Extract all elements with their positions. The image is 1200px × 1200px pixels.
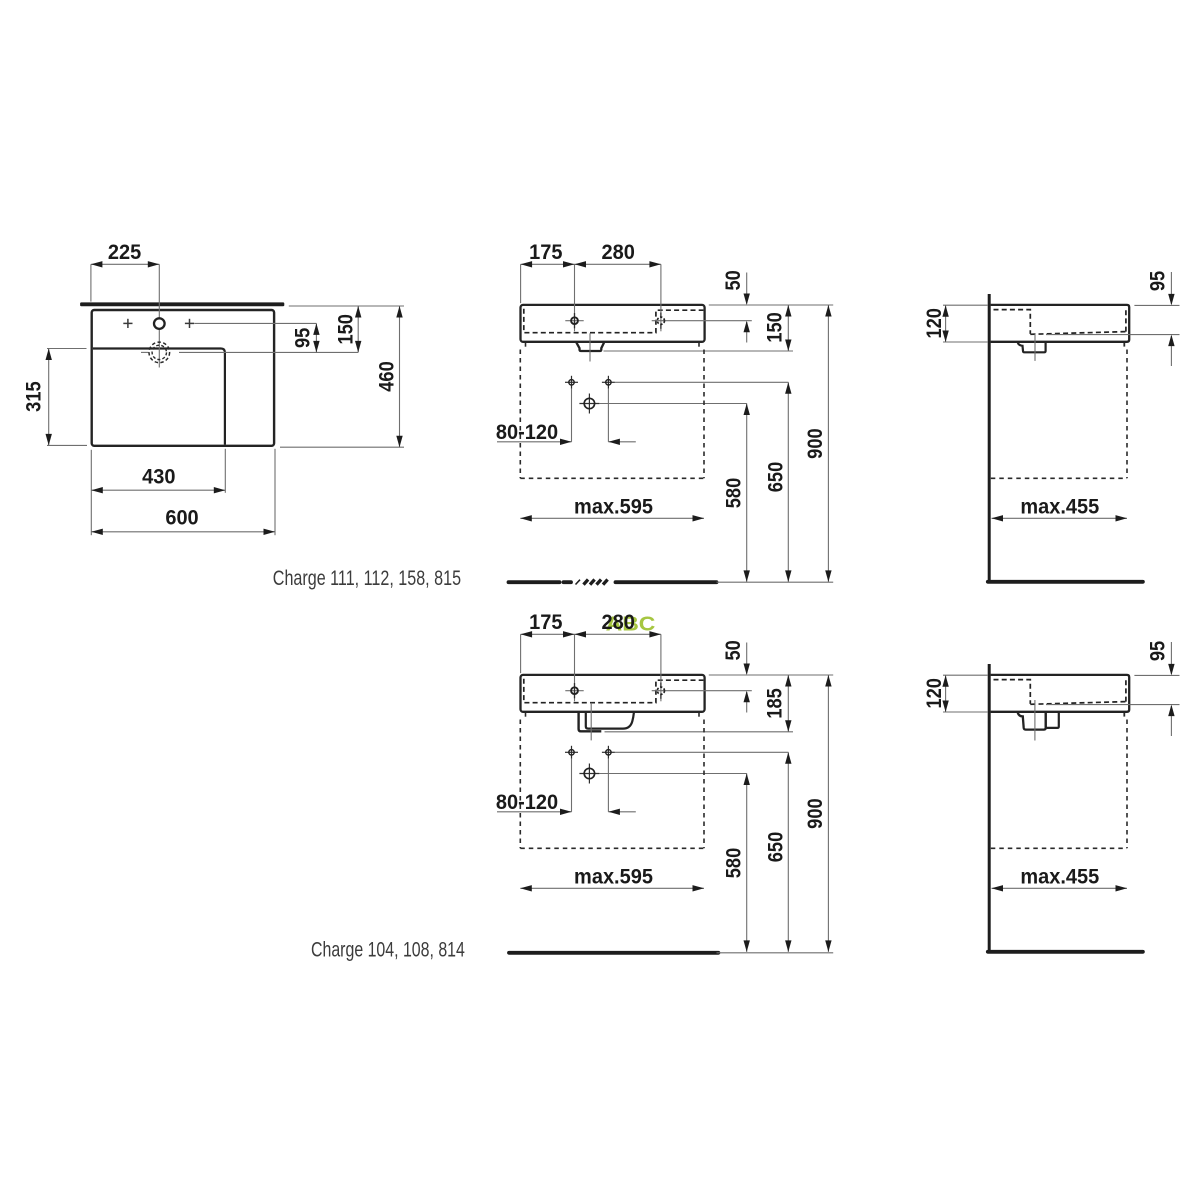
svg-text:185: 185: [763, 688, 787, 718]
svg-text:900: 900: [804, 798, 828, 828]
svg-text:95: 95: [291, 328, 315, 348]
svg-text:430: 430: [142, 465, 175, 489]
svg-text:150: 150: [334, 314, 358, 344]
svg-text:175: 175: [529, 610, 562, 634]
svg-text:460: 460: [375, 361, 399, 391]
svg-text:225: 225: [108, 240, 141, 264]
svg-text:580: 580: [722, 848, 746, 878]
svg-text:max.455: max.455: [1020, 495, 1099, 519]
svg-text:80-120: 80-120: [496, 420, 558, 444]
svg-text:600: 600: [165, 506, 198, 530]
svg-text:280: 280: [602, 610, 635, 634]
svg-text:580: 580: [722, 478, 746, 508]
svg-text:max.595: max.595: [574, 495, 653, 519]
svg-text:120: 120: [923, 678, 947, 708]
svg-text:max.595: max.595: [574, 865, 653, 889]
svg-text:95: 95: [1146, 271, 1170, 291]
svg-text:Charge 104, 108, 814: Charge 104, 108, 814: [311, 938, 465, 962]
svg-text:650: 650: [764, 462, 788, 492]
svg-text:900: 900: [804, 428, 828, 458]
svg-text:650: 650: [764, 832, 788, 862]
svg-text:80-120: 80-120: [496, 790, 558, 814]
svg-text:175: 175: [529, 240, 562, 264]
svg-text:315: 315: [22, 381, 46, 411]
svg-text:150: 150: [763, 312, 787, 342]
svg-text:Charge 111, 112, 158, 815: Charge 111, 112, 158, 815: [273, 567, 461, 591]
svg-text:50: 50: [722, 270, 746, 290]
svg-text:max.455: max.455: [1020, 865, 1099, 889]
svg-text:120: 120: [923, 308, 947, 338]
svg-text:95: 95: [1146, 641, 1170, 661]
svg-text:280: 280: [602, 240, 635, 264]
svg-text:50: 50: [722, 640, 746, 660]
